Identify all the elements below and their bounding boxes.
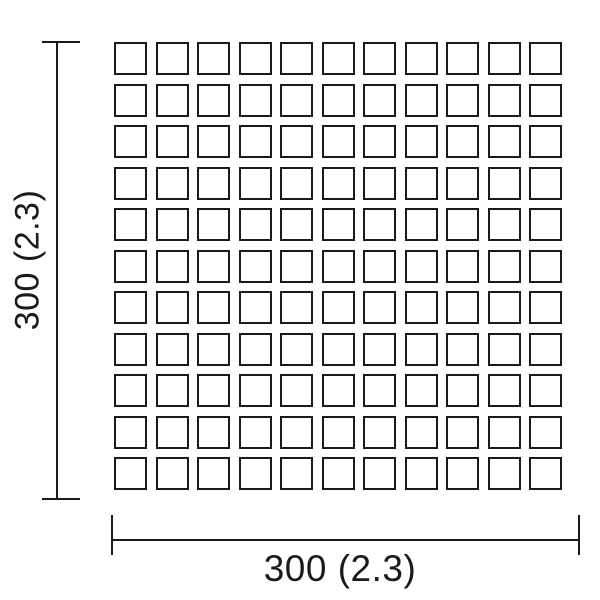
tile-cell [197,416,230,449]
tile-cell [446,333,479,366]
tile-cell [322,84,355,117]
tile-cell [114,42,147,75]
tile-cell [239,374,272,407]
tile-cell [529,125,562,158]
tile-cell [363,125,396,158]
tile-cell [322,416,355,449]
tile-cell [363,291,396,324]
tile-cell [446,167,479,200]
tile-cell [156,84,189,117]
tile-cell [156,208,189,241]
tile-cell [280,208,313,241]
tile-cell [529,416,562,449]
tile-cell [529,291,562,324]
tile-cell [197,333,230,366]
tile-cell [239,291,272,324]
tile-cell [114,291,147,324]
tile-cell [322,42,355,75]
tile-cell [280,125,313,158]
tile-cell [239,457,272,490]
tile-cell [529,457,562,490]
tile-cell [239,208,272,241]
tile-cell [405,84,438,117]
tile-cell [197,167,230,200]
tile-cell [529,84,562,117]
tile-cell [363,457,396,490]
tile-cell [488,457,521,490]
tile-cell [322,333,355,366]
tile-cell [363,374,396,407]
tile-cell [280,291,313,324]
tile-cell [322,167,355,200]
tile-cell [197,208,230,241]
tile-cell [280,416,313,449]
tile-cell [529,167,562,200]
vertical-dimension-label: 300 (2.3) [9,190,48,331]
tile-cell [363,84,396,117]
tile-cell [405,457,438,490]
tile-cell [446,457,479,490]
tile-cell [488,291,521,324]
tile-cell [363,42,396,75]
tile-cell [239,416,272,449]
tile-cell [488,250,521,283]
tile-cell [529,208,562,241]
tile-cell [363,208,396,241]
tile-cell [446,416,479,449]
tile-cell [405,416,438,449]
tile-cell [405,291,438,324]
tile-cell [156,291,189,324]
tile-cell [446,42,479,75]
tile-cell [114,208,147,241]
tile-cell [488,42,521,75]
tile-cell [405,250,438,283]
tile-cell [529,333,562,366]
tile-cell [239,333,272,366]
tile-cell [363,250,396,283]
tile-cell [280,333,313,366]
tile-cell [405,333,438,366]
tile-cell [197,42,230,75]
tile-cell [322,250,355,283]
tile-cell [114,250,147,283]
tile-cell [197,84,230,117]
tile-cell [529,374,562,407]
tile-cell [197,374,230,407]
tile-cell [322,374,355,407]
horizontal-dimension-label: 300 (2.3) [264,548,417,590]
tile-cell [529,42,562,75]
tile-cell [488,374,521,407]
tile-cell [114,416,147,449]
tile-cell [156,250,189,283]
tile-cell [363,333,396,366]
tile-cell [156,457,189,490]
tile-cell [488,208,521,241]
tile-cell [488,333,521,366]
tile-cell [446,125,479,158]
tile-cell [322,125,355,158]
tile-cell [156,333,189,366]
tile-cell [197,125,230,158]
tile-cell [156,125,189,158]
tile-cell [446,208,479,241]
tile-cell [156,416,189,449]
tile-cell [529,250,562,283]
tile-cell [446,374,479,407]
tile-cell [488,125,521,158]
tile-cell [363,416,396,449]
tile-cell [363,167,396,200]
tile-cell [405,42,438,75]
tile-cell [197,291,230,324]
tile-cell [114,167,147,200]
tile-cell [114,84,147,117]
tile-cell [280,250,313,283]
tile-cell [239,250,272,283]
tile-cell [280,167,313,200]
tile-cell [405,125,438,158]
tile-cell [280,42,313,75]
tile-cell [488,84,521,117]
tile-cell [322,457,355,490]
tile-cell [114,333,147,366]
tile-cell [239,42,272,75]
tile-cell [322,291,355,324]
tile-cell [488,416,521,449]
tile-cell [405,208,438,241]
tile-cell [239,125,272,158]
tile-cell [239,167,272,200]
tile-cell [156,42,189,75]
tile-cell [446,291,479,324]
tile-cell [114,374,147,407]
tile-cell [446,84,479,117]
tile-cell [156,374,189,407]
tile-cell [197,457,230,490]
tile-cell [156,167,189,200]
tile-cell [280,84,313,117]
tile-cell [280,457,313,490]
tile-cell [114,457,147,490]
tile-sheet-dimension-diagram: 300 (2.3) 300 (2.3) [0,0,600,600]
tile-cell [488,167,521,200]
tile-cell [239,84,272,117]
tile-cell [197,250,230,283]
tile-grid [114,42,562,490]
tile-cell [114,125,147,158]
tile-cell [446,250,479,283]
tile-cell [322,208,355,241]
tile-cell [405,374,438,407]
tile-cell [280,374,313,407]
tile-cell [405,167,438,200]
